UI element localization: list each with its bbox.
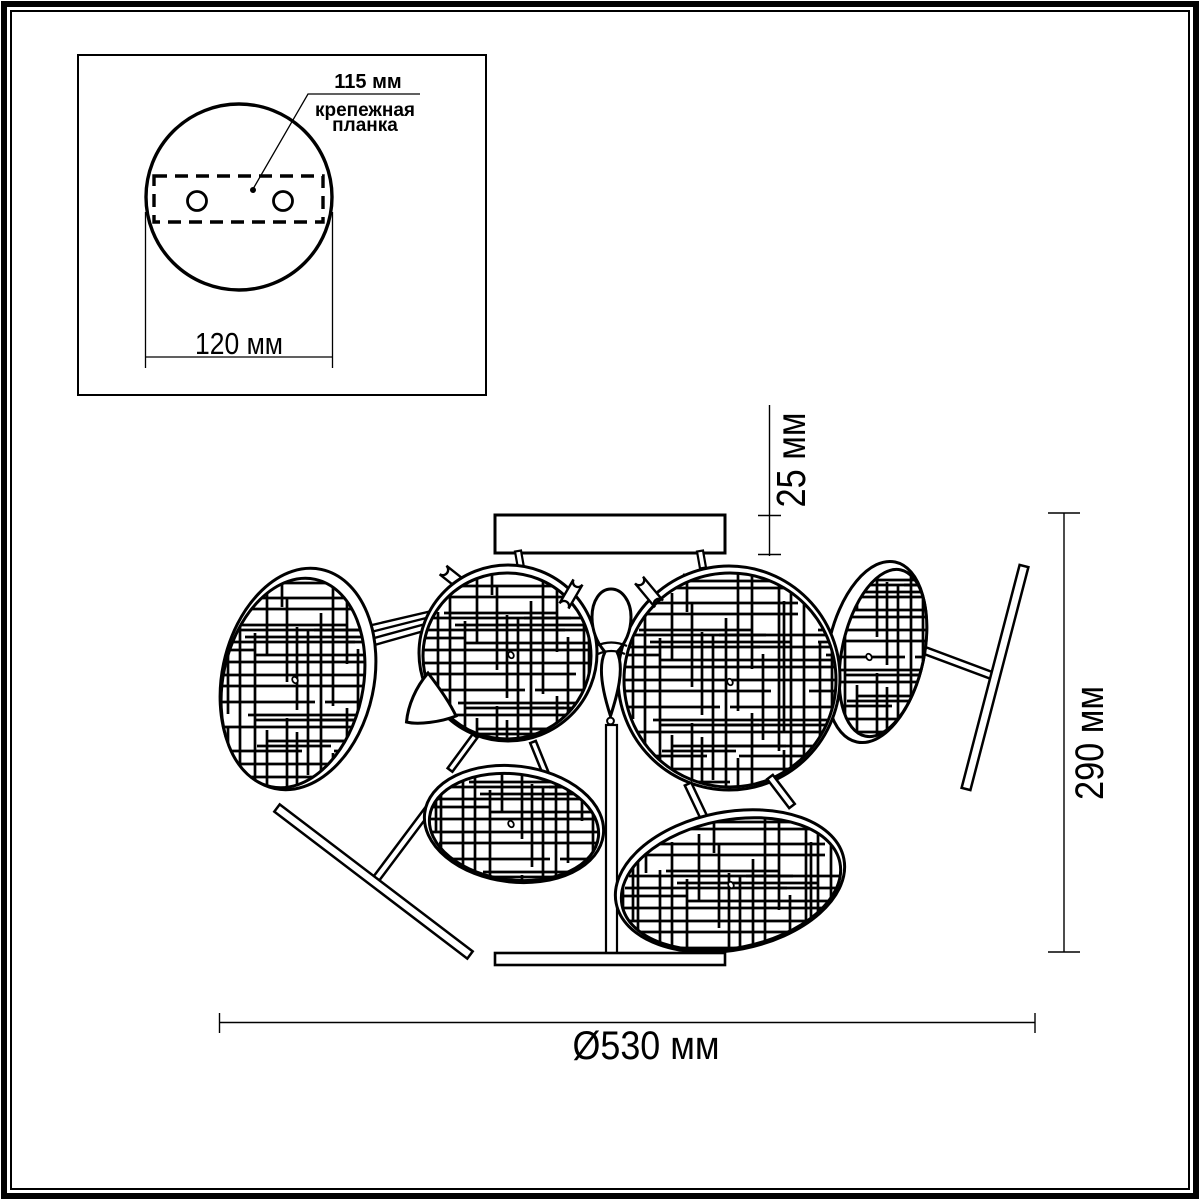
svg-text:25 мм: 25 мм (768, 413, 814, 508)
svg-text:120 мм: 120 мм (195, 326, 283, 361)
svg-text:планка: планка (332, 115, 398, 136)
svg-text:Ø530 мм: Ø530 мм (573, 1024, 720, 1068)
svg-text:115 мм: 115 мм (334, 71, 401, 93)
svg-text:290 мм: 290 мм (1068, 686, 1112, 800)
